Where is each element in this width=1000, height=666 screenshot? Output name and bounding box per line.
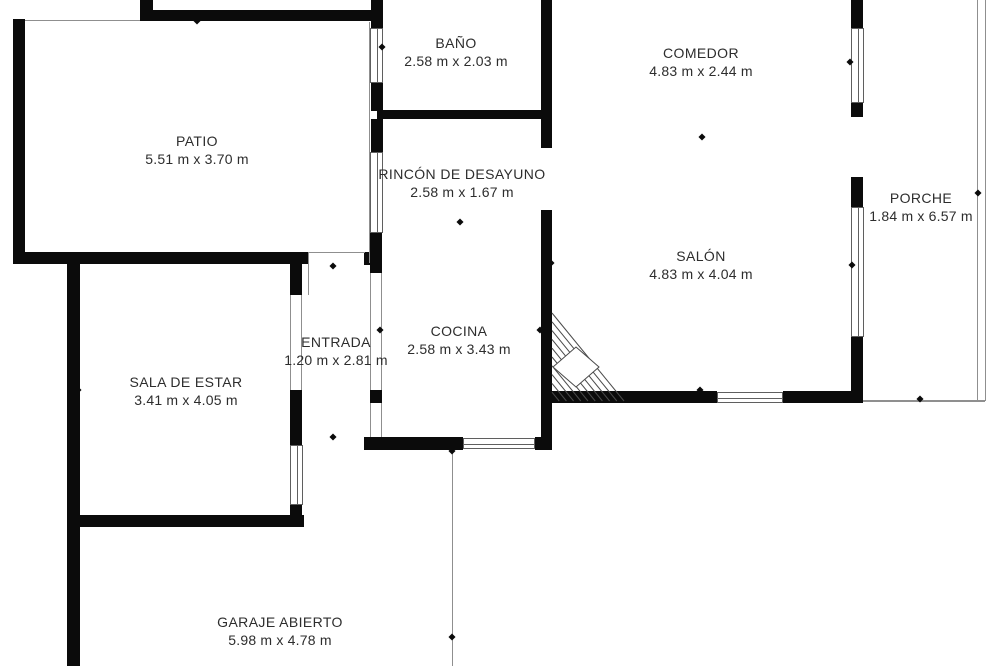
wall-segment bbox=[851, 337, 863, 403]
window-symbol bbox=[717, 392, 783, 403]
room-label-porche: PORCHE 1.84 m x 6.57 m bbox=[869, 189, 972, 225]
window-symbol bbox=[290, 445, 303, 505]
thin-boundary-line bbox=[370, 403, 371, 437]
wall-segment bbox=[290, 264, 302, 295]
wall-segment bbox=[851, 177, 863, 207]
wall-segment bbox=[371, 0, 383, 10]
wall-segment bbox=[13, 19, 25, 264]
room-name: SALA DE ESTAR bbox=[129, 373, 242, 391]
wall-segment bbox=[13, 252, 308, 264]
room-dimensions: 4.83 m x 4.04 m bbox=[649, 265, 752, 283]
window-symbol bbox=[370, 28, 383, 83]
room-dimensions: 5.51 m x 3.70 m bbox=[145, 150, 248, 168]
room-dimensions: 5.98 m x 4.78 m bbox=[217, 631, 343, 649]
wall-segment bbox=[370, 233, 382, 273]
wall-segment bbox=[80, 515, 304, 527]
wall-segment bbox=[140, 0, 153, 10]
room-label-patio: PATIO 5.51 m x 3.70 m bbox=[145, 132, 248, 168]
room-dimensions: 2.58 m x 3.43 m bbox=[407, 340, 510, 358]
room-dimensions: 2.58 m x 1.67 m bbox=[378, 183, 545, 201]
wall-segment bbox=[541, 0, 552, 148]
room-name: SALÓN bbox=[649, 247, 752, 265]
room-label-entrada: ENTRADA 1.20 m x 2.81 m bbox=[284, 333, 387, 369]
window-mid-line bbox=[464, 444, 534, 445]
room-dimensions: 2.58 m x 2.03 m bbox=[404, 52, 507, 70]
thin-boundary-line bbox=[370, 273, 371, 390]
window-mid-line bbox=[858, 208, 859, 336]
window-mid-line bbox=[297, 446, 298, 504]
wall-segment bbox=[290, 505, 302, 527]
thin-boundary-line bbox=[25, 20, 140, 21]
thin-boundary-line bbox=[381, 403, 382, 437]
wall-segment bbox=[371, 119, 383, 152]
room-label-bano: BAÑO 2.58 m x 2.03 m bbox=[404, 34, 507, 70]
wall-segment bbox=[364, 437, 463, 450]
room-name: RINCÓN DE DESAYUNO bbox=[378, 165, 545, 183]
wall-segment bbox=[535, 437, 552, 450]
dimension-tick bbox=[698, 133, 705, 140]
room-label-comedor: COMEDOR 4.83 m x 2.44 m bbox=[649, 44, 752, 80]
room-name: GARAJE ABIERTO bbox=[217, 613, 343, 631]
window-mid-line bbox=[377, 153, 378, 232]
window-symbol bbox=[851, 207, 864, 337]
room-name: PORCHE bbox=[869, 189, 972, 207]
window-mid-line bbox=[718, 398, 782, 399]
room-name: PATIO bbox=[145, 132, 248, 150]
room-label-cocina: COCINA 2.58 m x 3.43 m bbox=[407, 322, 510, 358]
stairs-landing-diamond bbox=[553, 347, 599, 387]
wall-segment bbox=[140, 10, 383, 21]
floorplan-canvas: PATIO 5.51 m x 3.70 m BAÑO 2.58 m x 2.03… bbox=[0, 0, 1000, 666]
room-dimensions: 3.41 m x 4.05 m bbox=[129, 391, 242, 409]
wall-segment bbox=[290, 390, 302, 445]
room-label-rincon-de-desayuno: RINCÓN DE DESAYUNO 2.58 m x 1.67 m bbox=[378, 165, 545, 201]
wall-segment bbox=[851, 103, 863, 117]
room-dimensions: 1.84 m x 6.57 m bbox=[869, 207, 972, 225]
dimension-tick bbox=[448, 633, 455, 640]
thin-boundary-line bbox=[308, 252, 365, 253]
window-mid-line bbox=[858, 29, 859, 102]
corner-stairs-icon bbox=[548, 305, 628, 405]
dimension-tick bbox=[329, 433, 336, 440]
room-dimensions: 1.20 m x 2.81 m bbox=[284, 351, 387, 369]
room-name: COMEDOR bbox=[649, 44, 752, 62]
wall-segment bbox=[67, 264, 80, 666]
thin-boundary-line bbox=[863, 400, 985, 402]
room-label-salon: SALÓN 4.83 m x 4.04 m bbox=[649, 247, 752, 283]
dimension-tick bbox=[329, 262, 336, 269]
wall-segment bbox=[851, 0, 863, 28]
wall-segment bbox=[370, 390, 382, 403]
room-dimensions: 4.83 m x 2.44 m bbox=[649, 62, 752, 80]
thin-boundary-line bbox=[308, 253, 309, 295]
room-name: BAÑO bbox=[404, 34, 507, 52]
window-symbol bbox=[463, 438, 535, 449]
dimension-tick bbox=[974, 189, 981, 196]
window-mid-line bbox=[377, 29, 378, 82]
thin-boundary-line bbox=[977, 0, 978, 401]
thin-boundary-line bbox=[985, 0, 986, 401]
window-symbol bbox=[851, 28, 864, 103]
room-label-sala-de-estar: SALA DE ESTAR 3.41 m x 4.05 m bbox=[129, 373, 242, 409]
room-label-garaje-abierto: GARAJE ABIERTO 5.98 m x 4.78 m bbox=[217, 613, 343, 649]
dimension-tick bbox=[456, 218, 463, 225]
room-name: COCINA bbox=[407, 322, 510, 340]
wall-segment bbox=[371, 83, 383, 111]
room-name: ENTRADA bbox=[284, 333, 387, 351]
